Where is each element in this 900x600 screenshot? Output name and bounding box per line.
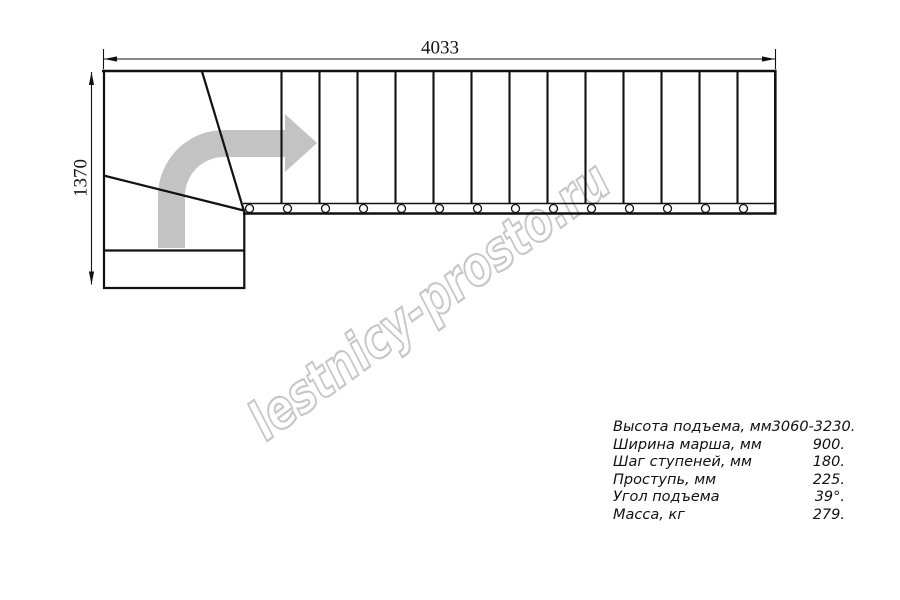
spec-label: Шаг ступеней, мм <box>613 454 752 472</box>
stringer-bolt-circle <box>664 205 672 213</box>
spec-label: Ширина марша, мм <box>613 437 762 455</box>
stringer-bolt-circle <box>360 205 368 213</box>
spec-value: 39°. <box>815 489 845 507</box>
stringer-bolt-circle <box>322 205 330 213</box>
spec-value: 3060-3230. <box>772 419 856 437</box>
dimension-top-arrow-right <box>762 56 775 61</box>
dimension-left-arrow-top <box>89 72 94 85</box>
spec-row: Высота подъема, мм 3060-3230. <box>613 419 845 437</box>
stringer-bolt-circle <box>284 205 292 213</box>
spec-row: Угол подъема 39°. <box>613 489 845 507</box>
spec-row: Масса, кг 279. <box>613 507 845 525</box>
spec-row: Ширина марша, мм 900. <box>613 437 845 455</box>
dimension-top-arrow-left <box>104 56 117 61</box>
stair-drawing-page: lestnicy-prosto.ru 40 <box>0 0 900 600</box>
spec-label: Проступь, мм <box>613 472 716 490</box>
stringer-bolt-circle <box>398 205 406 213</box>
dimension-left-label: 1370 <box>71 159 92 197</box>
stringer-bolt-circle <box>626 205 634 213</box>
spec-label: Угол подъема <box>613 489 720 507</box>
specs-table: Высота подъема, мм 3060-3230. Ширина мар… <box>613 419 845 524</box>
watermark-text: lestnicy-prosto.ru <box>237 149 622 453</box>
stringer-bolt-circle <box>740 205 748 213</box>
flight-step-lines <box>282 71 738 204</box>
stringer-bolt-circle <box>474 205 482 213</box>
spec-label: Высота подъема, мм <box>613 419 772 437</box>
stringer-bolt-circle <box>702 205 710 213</box>
direction-arrow-icon <box>158 114 317 248</box>
spec-row: Шаг ступеней, мм 180. <box>613 454 845 472</box>
stringer-bolt-circle <box>246 205 254 213</box>
stringer-bolt-circles <box>246 205 748 213</box>
stringer-bolt-circle <box>436 205 444 213</box>
dimension-top-label: 4033 <box>421 38 459 59</box>
spec-value: 225. <box>813 472 845 490</box>
spec-row: Проступь, мм 225. <box>613 472 845 490</box>
spec-value: 180. <box>813 454 845 472</box>
spec-value: 900. <box>813 437 845 455</box>
spec-label: Масса, кг <box>613 507 685 525</box>
spec-value: 279. <box>813 507 845 525</box>
dimension-left-arrow-bottom <box>89 272 94 285</box>
